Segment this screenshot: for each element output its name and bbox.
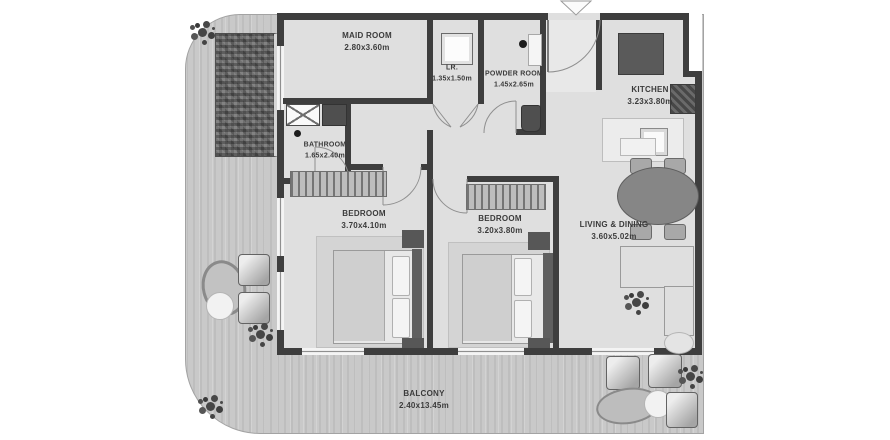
- room-dims: 1.35x1.50m: [432, 74, 472, 85]
- room-label-kitchen: KITCHEN 3.23x3.80m: [627, 84, 672, 108]
- room-label-laundry: LR. 1.35x1.50m: [432, 64, 472, 85]
- toilet: [521, 105, 541, 132]
- bedroom1-window-1: [277, 198, 284, 256]
- wall-bedroom1-bedroom2: [427, 130, 433, 348]
- washing-machine: [441, 33, 473, 65]
- plant: [206, 402, 215, 411]
- entrance-hall-floor: [546, 20, 596, 92]
- balcony-armchair: [648, 354, 682, 388]
- room-name: BEDROOM: [477, 213, 522, 225]
- balcony-armchair: [606, 356, 640, 390]
- room-dims: 3.70x4.10m: [341, 220, 386, 232]
- nightstand: [528, 338, 550, 348]
- shower-tray: [286, 104, 320, 126]
- powder-faucet: [519, 40, 527, 48]
- balcony-chair: [666, 392, 698, 428]
- room-label-bedroom-2: BEDROOM 3.20x3.80m: [477, 213, 522, 237]
- wall-bedroom1-top-a: [351, 164, 383, 170]
- entrance-opening: [548, 13, 600, 20]
- sofa-section: [620, 246, 694, 288]
- wardrobe-bedroom2: [466, 184, 546, 210]
- wall-maid-lr: [427, 20, 433, 104]
- bedroom1-balcony-door: [302, 348, 364, 355]
- facade-notch: [689, 13, 702, 77]
- bathroom-sink-unit: [322, 104, 347, 126]
- nightstand: [402, 338, 424, 348]
- wall-hall-kitchen: [596, 20, 602, 90]
- bedroom2-balcony-door: [458, 348, 524, 355]
- balcony-armchair: [238, 254, 270, 286]
- room-label-bathroom: BATHROOM 1.65x2.40m: [304, 141, 347, 162]
- wall-notch-horizontal: [683, 71, 702, 77]
- room-name: LR.: [432, 64, 472, 75]
- room-dims: 2.40x13.45m: [399, 400, 449, 412]
- room-label-living-dining: LIVING & DINING 3.60x5.02m: [580, 219, 649, 243]
- room-dims: 3.20x3.80m: [477, 225, 522, 237]
- pillow: [514, 300, 532, 338]
- room-label-bedroom-1: BEDROOM 3.70x4.10m: [341, 208, 386, 232]
- room-name: BEDROOM: [341, 208, 386, 220]
- headboard-bedroom1: [412, 249, 422, 343]
- dining-chair: [664, 224, 686, 240]
- plant: [256, 330, 265, 339]
- fridge: [618, 33, 664, 75]
- room-label-balcony: BALCONY 2.40x13.45m: [399, 388, 449, 412]
- floor-plan: MAID ROOM 2.80x3.60m LR. 1.35x1.50m POWD…: [0, 0, 890, 440]
- pillow: [392, 298, 410, 338]
- sofa-chaise: [664, 286, 694, 336]
- balcony-armchair: [238, 292, 270, 324]
- nightstand: [528, 232, 550, 250]
- room-name: BATHROOM: [304, 141, 347, 152]
- wall-notch-vertical: [683, 13, 689, 77]
- room-name: MAID ROOM: [342, 30, 392, 42]
- plant: [632, 298, 641, 307]
- plunge-pool: [215, 33, 279, 157]
- room-dims: 3.60x5.02m: [580, 231, 649, 243]
- pillow: [514, 258, 532, 296]
- plant: [198, 28, 207, 37]
- room-name: LIVING & DINING: [580, 219, 649, 231]
- room-dims: 1.65x2.40m: [304, 151, 347, 162]
- service-shaft: [670, 84, 696, 114]
- room-name: KITCHEN: [627, 84, 672, 96]
- bedroom1-window-2: [277, 272, 284, 330]
- ottoman: [206, 292, 234, 320]
- wall-bedroom2-living: [553, 176, 559, 348]
- duvet-bedroom2: [463, 255, 512, 341]
- console-table: [620, 138, 656, 156]
- wardrobe-bedroom1: [290, 171, 387, 197]
- room-dims: 2.80x3.60m: [342, 42, 392, 54]
- room-label-maid-room: MAID ROOM 2.80x3.60m: [342, 30, 392, 54]
- duvet-bedroom1: [334, 251, 385, 341]
- room-name: POWDER ROOM: [485, 70, 543, 81]
- living-balcony-door: [592, 348, 654, 355]
- wall-lr-powder: [478, 20, 484, 104]
- wall-bedroom2-top: [467, 176, 553, 182]
- room-dims: 3.23x3.80m: [627, 96, 672, 108]
- nightstand: [402, 230, 424, 248]
- plant: [686, 372, 695, 381]
- room-dims: 1.45x2.65m: [485, 80, 543, 91]
- room-label-powder-room: POWDER ROOM 1.45x2.65m: [485, 70, 543, 91]
- headboard-bedroom2: [543, 253, 553, 343]
- powder-vanity: [528, 34, 542, 66]
- room-name: BALCONY: [399, 388, 449, 400]
- dining-table: [617, 167, 699, 225]
- sofa-pouf: [664, 332, 694, 354]
- bathroom-drain: [294, 130, 301, 137]
- pillow: [392, 256, 410, 296]
